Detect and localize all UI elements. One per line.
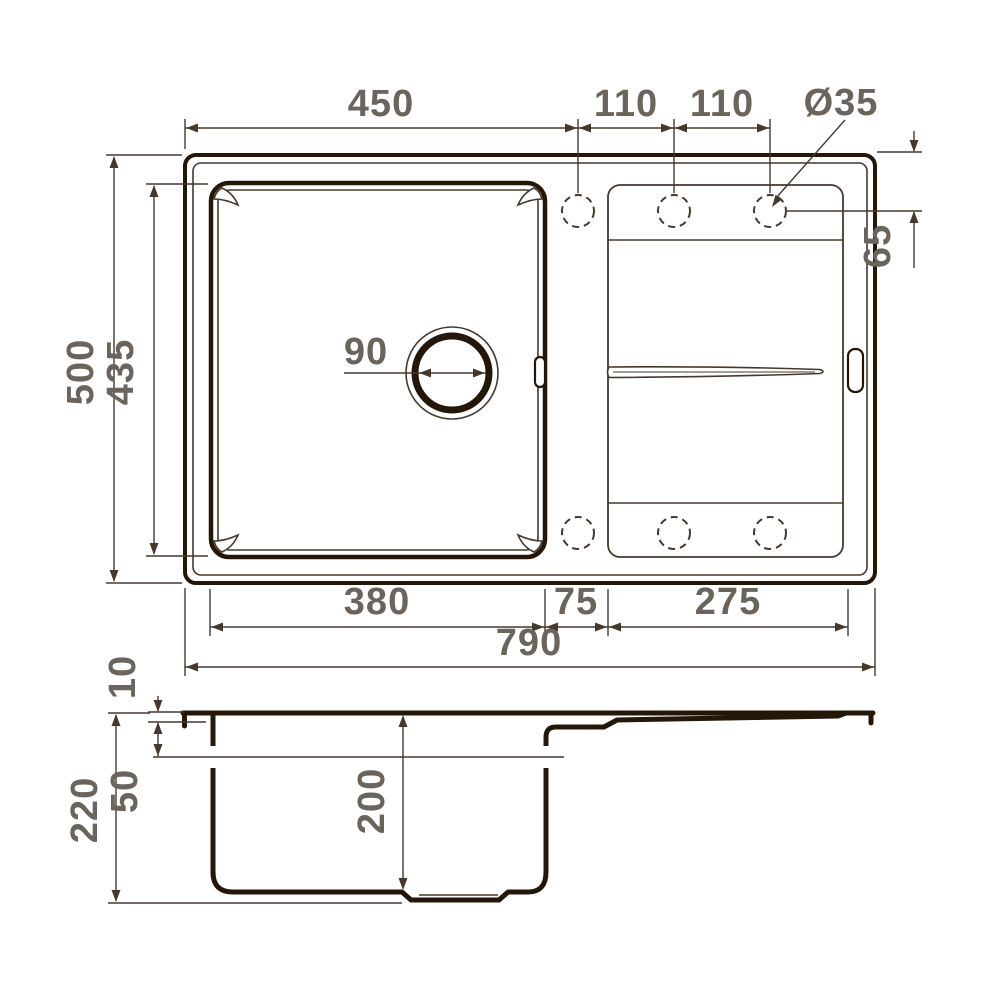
- arrowhead: [399, 715, 408, 727]
- dim-200: 200: [351, 715, 408, 890]
- dim-220-label: 220: [64, 777, 106, 843]
- dim-65-label: 65: [857, 224, 899, 268]
- arrowhead: [772, 195, 782, 207]
- faucet-hole: [562, 517, 594, 549]
- arrowhead: [419, 369, 431, 378]
- arrowhead: [110, 570, 119, 582]
- arrowhead: [112, 890, 121, 902]
- drainboard: [608, 185, 864, 557]
- arrowhead: [211, 623, 223, 632]
- arrowhead: [154, 744, 163, 756]
- faucet-hole: [658, 517, 690, 549]
- overflow-slot-bowl: [535, 357, 545, 387]
- faucet-hole: [754, 517, 786, 549]
- arrowhead: [579, 124, 591, 133]
- sink-technical-drawing: 90 450 110: [0, 0, 1000, 1000]
- arrowhead: [110, 156, 119, 168]
- arrowhead: [675, 124, 687, 133]
- dim-275-label: 275: [695, 581, 761, 623]
- arrowhead: [609, 623, 621, 632]
- extension-lines: [787, 152, 922, 211]
- faucet-hole: [658, 195, 690, 227]
- arrowhead: [399, 878, 408, 890]
- faucet-hole: [562, 195, 594, 227]
- dim-hole-diameter-label: Ø35: [804, 82, 879, 124]
- arrowhead: [186, 663, 198, 672]
- extension-lines: [146, 184, 208, 556]
- arrowhead: [150, 543, 159, 555]
- dim-500-label: 500: [60, 339, 102, 405]
- arrowhead: [910, 211, 919, 223]
- dim-50: 50: [104, 723, 163, 813]
- drawing-canvas: 90 450 110: [0, 0, 1000, 1000]
- arrowhead: [862, 663, 874, 672]
- arrowhead: [112, 714, 121, 726]
- section-profile: [153, 713, 873, 900]
- arrowhead: [835, 623, 847, 632]
- dim-200-label: 200: [351, 768, 393, 834]
- overflow-slot-rim: [848, 349, 863, 392]
- dim-50-label: 50: [104, 769, 146, 813]
- dim-110b-label: 110: [690, 83, 754, 125]
- dim-110a-label: 110: [594, 83, 658, 125]
- dim-bottom-790: 790: [185, 588, 875, 676]
- section-view: 200 220 10 50: [64, 655, 873, 903]
- dim-75-label: 75: [554, 581, 598, 623]
- dim-top-chain: 450 110 110: [185, 83, 770, 193]
- arrowhead: [565, 124, 577, 133]
- bowl-section-profile: [213, 713, 846, 900]
- dim-380-label: 380: [344, 581, 410, 623]
- dim-left-435: 435: [100, 184, 208, 556]
- dim-10-label: 10: [102, 655, 144, 699]
- arrowhead: [186, 124, 198, 133]
- arrowhead: [661, 124, 673, 133]
- arrowhead: [154, 700, 163, 712]
- dim-90-label: 90: [344, 331, 388, 373]
- dim-right-65: 65: [787, 131, 922, 268]
- dim-435-label: 435: [100, 339, 142, 405]
- arrowhead: [473, 369, 485, 378]
- arrowhead: [910, 140, 919, 152]
- dim-790-label: 790: [496, 622, 562, 664]
- dim-450-label: 450: [348, 83, 414, 125]
- arrowhead: [595, 623, 607, 632]
- arrowhead: [150, 185, 159, 197]
- dim-hole-diameter: Ø35: [772, 82, 878, 207]
- top-view: 90 450 110: [60, 82, 922, 676]
- arrowhead: [757, 124, 769, 133]
